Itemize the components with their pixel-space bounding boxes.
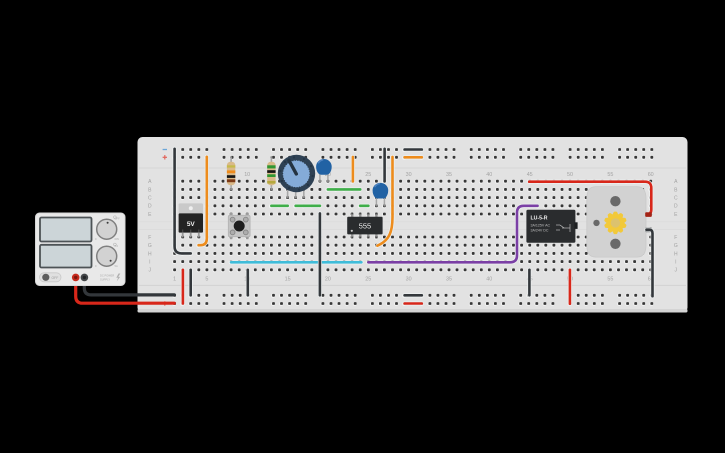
svg-text:555: 555 xyxy=(359,221,371,230)
svg-text:60: 60 xyxy=(648,172,654,178)
svg-text:10: 10 xyxy=(244,172,250,178)
svg-text:50: 50 xyxy=(567,172,573,178)
svg-text:SUPPLY: SUPPLY xyxy=(100,278,110,282)
svg-text:35: 35 xyxy=(446,277,452,283)
svg-text:5V: 5V xyxy=(187,221,196,228)
svg-text:OFF: OFF xyxy=(52,276,59,280)
svg-text:30: 30 xyxy=(406,277,412,283)
svg-text:25: 25 xyxy=(365,277,371,283)
svg-text:G: G xyxy=(674,243,678,249)
svg-text:30: 30 xyxy=(406,172,412,178)
svg-text:LU-5-R: LU-5-R xyxy=(531,215,548,221)
svg-text:40: 40 xyxy=(486,172,492,178)
svg-text:40: 40 xyxy=(486,277,492,283)
svg-text:55: 55 xyxy=(607,277,613,283)
svg-text:G: G xyxy=(148,243,152,249)
svg-text:I: I xyxy=(149,260,150,266)
svg-text:H: H xyxy=(148,251,152,257)
svg-text:3A/24V DC: 3A/24V DC xyxy=(531,229,549,233)
svg-text:D: D xyxy=(148,204,152,210)
svg-text:DC POWER: DC POWER xyxy=(100,274,114,278)
svg-text:5A: 5A xyxy=(115,264,118,268)
svg-text:H: H xyxy=(674,251,678,257)
svg-text:55: 55 xyxy=(607,172,613,178)
svg-text:25: 25 xyxy=(365,172,371,178)
svg-text:I: I xyxy=(675,260,676,266)
svg-text:35: 35 xyxy=(446,172,452,178)
svg-text:3A/125V AC: 3A/125V AC xyxy=(531,224,551,228)
svg-text:F: F xyxy=(148,235,151,241)
svg-text:15: 15 xyxy=(285,277,291,283)
svg-text:C: C xyxy=(674,196,678,202)
svg-text:5: 5 xyxy=(205,277,208,283)
svg-text:20: 20 xyxy=(325,277,331,283)
svg-text:1: 1 xyxy=(173,277,176,283)
svg-text:45: 45 xyxy=(527,172,533,178)
svg-text:D: D xyxy=(674,204,678,210)
svg-text:F: F xyxy=(674,235,677,241)
svg-text:60V: 60V xyxy=(115,237,120,241)
svg-text:C: C xyxy=(148,196,152,202)
